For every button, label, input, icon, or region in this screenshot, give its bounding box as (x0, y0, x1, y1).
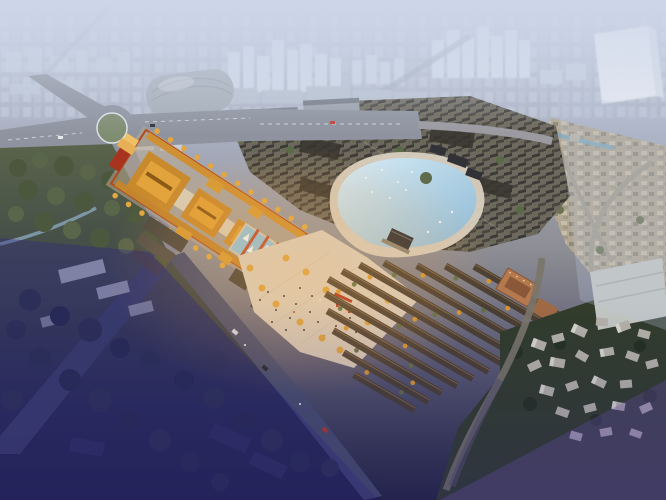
aerial-rendering (0, 0, 666, 500)
rendering-canvas (0, 0, 666, 500)
top-haze (0, 0, 666, 135)
